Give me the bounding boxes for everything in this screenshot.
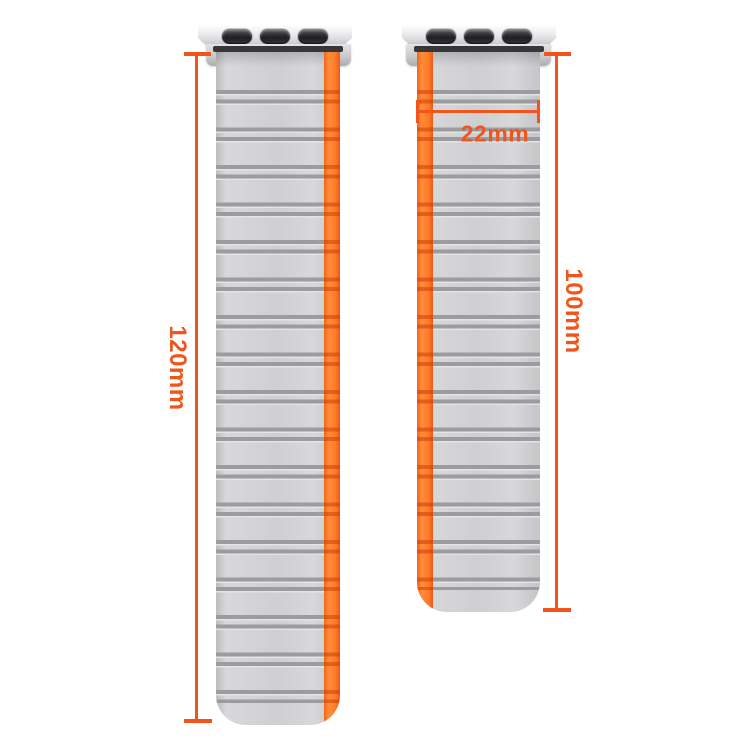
adapter-slot-icon [298,29,328,44]
strap-top-shadow [417,52,540,66]
adapter-slot-icon [260,29,290,44]
dimension-line-left-length [195,54,198,722]
dimension-tick [537,100,540,123]
dimension-tick [184,719,212,723]
dimension-label-width: 22mm [461,123,529,146]
stripe-ridges [324,90,340,703]
dimension-label-left-length: 120mm [165,325,189,410]
dimension-line-width [417,110,539,113]
strap-accent-stripe [417,52,433,612]
adapter-slot-icon [502,29,532,44]
adapter-slot-icon [426,29,456,44]
dimension-tick [544,52,571,56]
dimension-tick [416,100,419,123]
strap-left [216,52,340,725]
strap-top-shadow [216,52,340,66]
dimension-tick [184,52,211,56]
adapter-slot-icon [222,29,252,44]
product-dimension-diagram: 120mm 100mm 22mm [0,0,750,750]
strap-ridges [417,90,540,590]
stripe-ridges [417,90,433,590]
dimension-label-right-length: 100mm [561,268,585,353]
adapter-slot-icon [464,29,494,44]
dimension-tick [543,608,571,612]
strap-accent-stripe [324,52,340,725]
dimension-line-right-length [555,54,558,612]
strap-ridges [216,90,340,703]
